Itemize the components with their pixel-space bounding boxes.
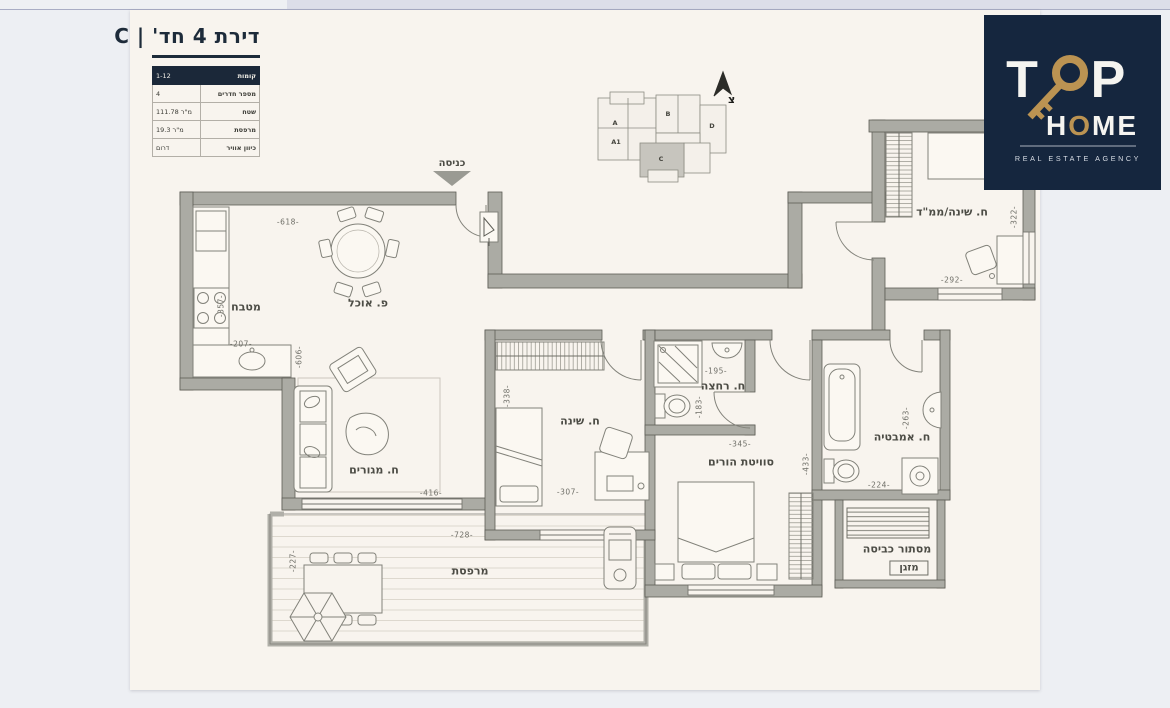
spec-table: קומות 1-12 מספר חדרים 4 שטח 111.78 מ"ר מ… (152, 66, 260, 157)
electrical-panel (480, 212, 498, 246)
table-row: שטח 111.78 מ"ר (153, 103, 260, 121)
coffee-table (346, 413, 388, 455)
title-block: דירת 4 חד' | C קומות 1-12 מספר חדרים 4 ש… (152, 24, 260, 157)
bathroom-fixtures (824, 364, 941, 494)
sink (712, 343, 742, 358)
shower-room-fixtures (654, 341, 742, 418)
building-keymap (598, 92, 726, 182)
desk (997, 236, 1023, 284)
master-furniture (655, 482, 813, 580)
title-underline (152, 55, 260, 58)
logo-home: HOME (1046, 110, 1138, 141)
table-row: כיוון אוויר דרום (153, 139, 260, 157)
agency-logo: T P HOME REAL ESTATE AGENCY (984, 15, 1161, 190)
page-title: דירת 4 חד' | C (152, 24, 260, 48)
sink (923, 392, 941, 428)
bedroom-furniture (496, 342, 649, 506)
dining-set (318, 206, 399, 297)
laundry-vent (847, 508, 929, 538)
living-furniture (294, 346, 440, 492)
washer (902, 458, 938, 494)
table-row: קומות 1-12 (153, 67, 260, 85)
table-row: מספר חדרים 4 (153, 85, 260, 103)
table-row: מרפסת 19.3 מ"ר (153, 121, 260, 139)
logo-letter-t: T (1006, 51, 1038, 109)
logo-tagline: REAL ESTATE AGENCY (1015, 154, 1141, 163)
north-arrow: צ (714, 72, 735, 106)
north-label: צ (728, 93, 735, 106)
double-bed (678, 482, 754, 562)
bbq-grill (604, 527, 636, 589)
kitchen-fixtures (193, 207, 291, 377)
logo-letter-p: P (1091, 51, 1126, 109)
armchair (328, 346, 377, 393)
floorplan-page: צ דירת 4 חד' | C קומות 1-12 מספר חדרים 4… (0, 0, 1170, 708)
logo-svg: T P HOME REAL ESTATE AGENCY (984, 15, 1161, 190)
